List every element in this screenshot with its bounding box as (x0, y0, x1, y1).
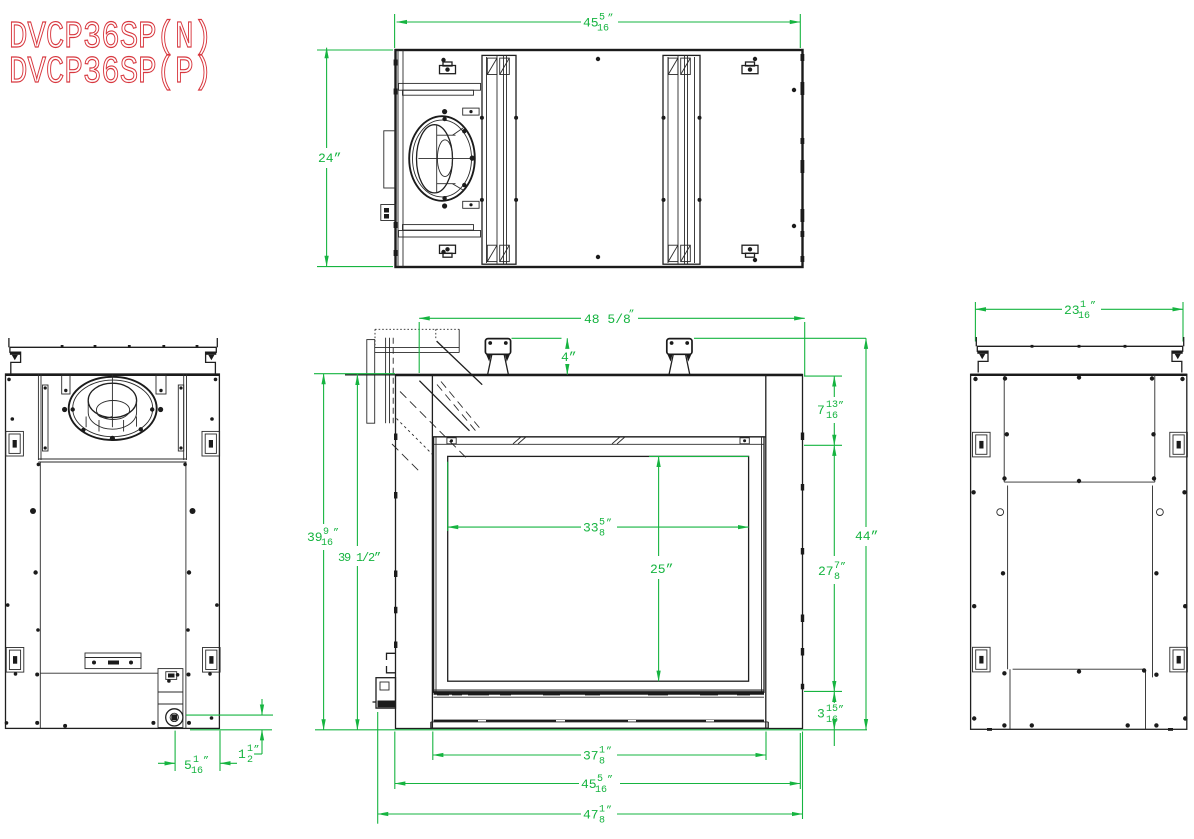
svg-text:5: 5 (599, 518, 605, 529)
svg-text:1: 1 (193, 755, 199, 766)
svg-text:15: 15 (826, 704, 838, 715)
svg-text:39 1/2”: 39 1/2” (338, 551, 381, 565)
svg-text:8: 8 (599, 757, 605, 768)
svg-text:13: 13 (826, 400, 838, 411)
svg-text:”: ” (203, 756, 209, 768)
svg-text:8: 8 (599, 529, 605, 540)
svg-text:3: 3 (817, 707, 825, 722)
svg-text:”: ” (606, 518, 612, 530)
svg-text:24”: 24” (318, 151, 341, 166)
svg-text:16: 16 (826, 715, 838, 726)
svg-text:8: 8 (599, 816, 605, 827)
svg-text:7: 7 (817, 403, 825, 418)
svg-text:33: 33 (583, 521, 599, 536)
svg-text:”: ” (629, 309, 635, 321)
svg-text:16: 16 (597, 24, 609, 35)
svg-text:25”: 25” (650, 562, 673, 577)
svg-text:”: ” (1090, 300, 1096, 312)
svg-text:47: 47 (583, 808, 599, 823)
svg-text:16: 16 (595, 785, 607, 796)
svg-text:”: ” (838, 401, 844, 413)
svg-text:4”: 4” (561, 350, 577, 365)
svg-text:”: ” (840, 562, 846, 574)
svg-text:16: 16 (191, 766, 203, 777)
svg-text:9: 9 (323, 527, 329, 538)
svg-text:DVCP36SP(P): DVCP36SP(P) (9, 51, 212, 94)
svg-text:”: ” (254, 745, 260, 757)
svg-text:1: 1 (1080, 300, 1086, 311)
svg-text:16: 16 (321, 538, 333, 549)
svg-text:2: 2 (247, 755, 253, 766)
svg-text:”: ” (838, 705, 844, 717)
svg-text:27: 27 (818, 564, 834, 579)
svg-text:1: 1 (238, 747, 246, 762)
svg-text:1: 1 (599, 805, 605, 816)
svg-text:”: ” (606, 805, 612, 817)
svg-text:16: 16 (826, 411, 838, 422)
svg-text:”: ” (607, 775, 613, 787)
svg-text:”: ” (606, 746, 612, 758)
svg-text:8: 8 (834, 572, 840, 583)
svg-text:44”: 44” (855, 529, 878, 544)
svg-text:”: ” (608, 13, 614, 25)
svg-text:37: 37 (583, 749, 599, 764)
svg-text:16: 16 (1078, 311, 1090, 322)
svg-text:”: ” (333, 528, 339, 540)
svg-text:1: 1 (599, 746, 605, 757)
svg-text:1: 1 (247, 744, 253, 755)
svg-text:5: 5 (597, 774, 603, 785)
svg-text:48 5/8: 48 5/8 (584, 312, 631, 327)
svg-text:5: 5 (599, 13, 605, 24)
